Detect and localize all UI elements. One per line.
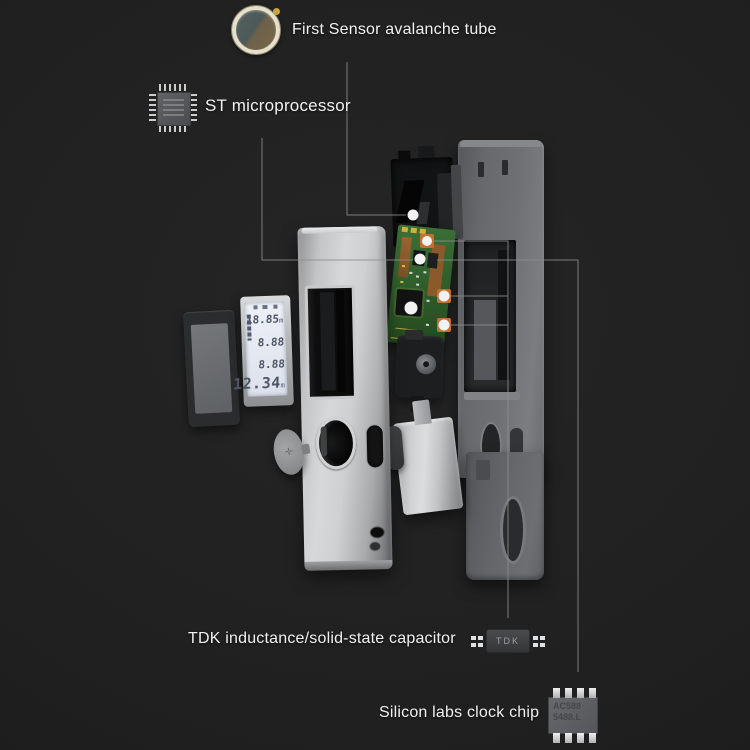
chip-pins — [149, 94, 156, 123]
callout-dot-tdk-3 — [439, 320, 450, 331]
callout-dot-mcu — [415, 254, 426, 265]
chip-pins — [553, 733, 604, 743]
microprocessor-chip-icon — [146, 81, 200, 135]
chip-body: AC588 5488.L — [548, 697, 598, 734]
callout-line-sensor — [347, 62, 406, 215]
chip-body — [157, 92, 191, 126]
callout-dot-tdk-2 — [439, 291, 450, 302]
highlight-dot-chip — [405, 302, 418, 315]
callout-line-mcu — [262, 138, 413, 260]
clock-chip-icon: AC588 5488.L — [548, 688, 604, 743]
callout-dot-tdk-1 — [422, 236, 432, 246]
chip-marking — [163, 99, 184, 119]
clock-label: Silicon labs clock chip — [379, 704, 539, 722]
sensor-label: First Sensor avalanche tube — [292, 21, 497, 39]
chip-pins — [159, 84, 188, 91]
chip-marking-line1: AC588 — [553, 701, 597, 712]
component-pads — [533, 636, 545, 647]
tdk-label: TDK inductance/solid-state capacitor — [188, 630, 456, 648]
tdk-inductor-icon: TDK — [471, 629, 545, 653]
chip-pins — [159, 125, 188, 132]
exploded-view-diagram: 18.85m 8.88 8.88 12.34m ✛ First Sensor a… — [0, 0, 750, 750]
callout-dot-sensor — [408, 210, 419, 221]
chip-pins — [190, 94, 197, 123]
chip-marking-line2: 5488.L — [553, 712, 597, 723]
component-pads — [471, 636, 483, 647]
avalanche-tube-icon — [232, 6, 280, 54]
tdk-component-body: TDK — [486, 629, 530, 653]
mcu-label: ST microprocessor — [205, 96, 351, 116]
